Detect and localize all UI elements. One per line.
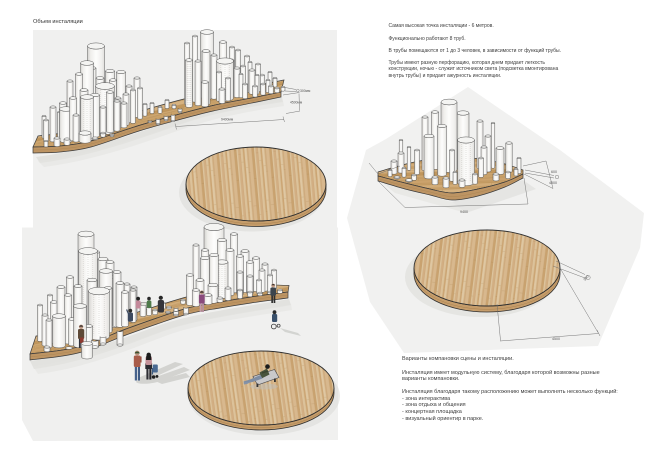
svg-text:600: 600 bbox=[551, 170, 557, 174]
svg-text:4500мм: 4500мм bbox=[290, 101, 303, 105]
svg-text:9400: 9400 bbox=[460, 210, 468, 214]
svg-text:4500: 4500 bbox=[549, 181, 557, 185]
svg-text:9400мм: 9400мм bbox=[221, 118, 234, 122]
svg-text:300мм: 300мм bbox=[300, 89, 311, 93]
svg-text:4500: 4500 bbox=[552, 337, 560, 341]
